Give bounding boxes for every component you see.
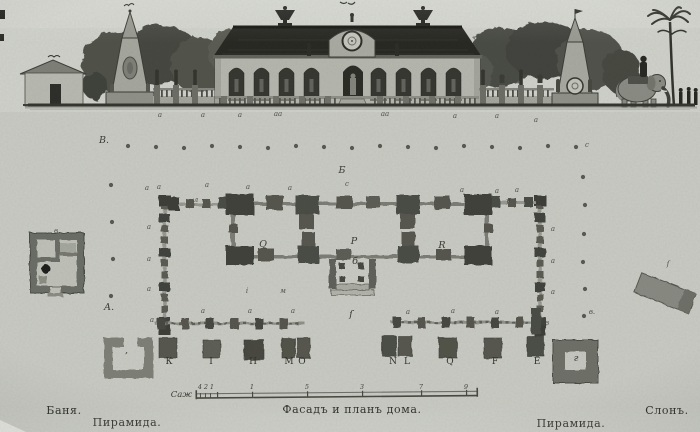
engraving-photo: В.А.св.БсQРRбſулгвміʼſКIНМОNLQFЕаааааааа… (0, 0, 700, 432)
caption-pyramid-left: Пирамида. (93, 416, 162, 429)
scale-tick: 7 (419, 384, 423, 391)
scale-tick: 4 (198, 384, 202, 391)
scale-tick: 1 (250, 384, 254, 391)
scale-tick: 1 (210, 384, 214, 391)
caption-pyramid-right: Пирамида. (537, 417, 606, 430)
caption-elephant: Слонъ. (645, 404, 688, 417)
scale-tick: 2 (204, 384, 208, 391)
scale-bar-label: Саж (171, 390, 192, 400)
scale-tick: 3 (360, 384, 364, 391)
scale-tick: 5 (305, 384, 309, 391)
caption-bath: Баня. (46, 404, 81, 417)
caption-main-title: Фасадъ и планъ дома. (282, 403, 421, 416)
scale-tick-numbers: 42115379 (0, 0, 700, 432)
scale-tick: 9 (464, 384, 468, 391)
